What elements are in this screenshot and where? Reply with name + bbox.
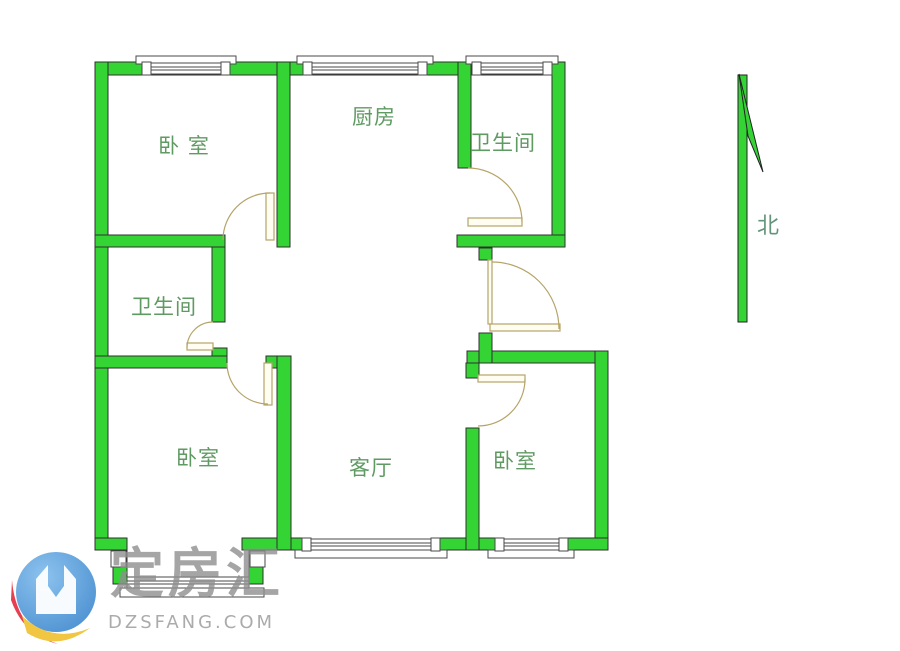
wall-bathroom1-bottom <box>457 235 565 247</box>
wall-bottom-seg4 <box>568 538 608 550</box>
room-label-living-room: 客厅 <box>349 456 393 480</box>
wall-living-bed3-divider-bottom <box>466 428 479 550</box>
wall-right-top <box>552 62 565 247</box>
wall-living-bed3-divider-top <box>466 363 479 378</box>
wall-entry-lower <box>479 333 492 363</box>
door-bathroom-mid-left <box>187 322 213 350</box>
window-bedroom-bottom-right <box>488 538 574 558</box>
door-entrance <box>488 260 560 331</box>
room-labels: 卧 室 厨房 卫生间 卫生间 卧室 客厅 卧室 <box>131 105 537 480</box>
north-arrow: 北 <box>738 74 779 322</box>
window-kitchen <box>297 56 433 75</box>
room-label-kitchen: 厨房 <box>352 105 396 129</box>
window-bathroom-top-right <box>466 56 558 75</box>
logo-mark <box>11 552 96 644</box>
wall-entry-stub <box>479 248 492 260</box>
watermark-brand: 定房汇 <box>110 546 284 603</box>
door-bathroom-top-right <box>468 168 522 226</box>
logo-circle <box>16 552 96 632</box>
wall-bedroom1-bottom <box>95 235 225 247</box>
wall-bedroom2-right <box>277 356 291 550</box>
room-label-bathroom-top-right: 卫生间 <box>470 131 536 155</box>
floor-plan-page: 卧 室 厨房 卫生间 卫生间 卧室 客厅 卧室 北 <box>0 0 900 651</box>
room-label-bedroom-bottom-right: 卧室 <box>493 449 537 473</box>
door-bedroom-bottom-left <box>227 363 272 405</box>
door-bedroom-top-left <box>223 193 274 240</box>
wall-bedroom1-right <box>277 62 290 247</box>
room-label-bedroom-top-left: 卧 室 <box>158 134 210 158</box>
door-bedroom-bottom-right <box>478 375 525 426</box>
north-label: 北 <box>757 214 779 239</box>
room-label-bedroom-bottom-left: 卧室 <box>176 446 220 470</box>
wall-bathroom2-bottom <box>95 356 227 368</box>
watermark-domain: DZSFANG.COM <box>108 612 275 633</box>
room-label-bathroom-mid-left: 卫生间 <box>131 295 197 319</box>
wall-left <box>95 62 108 550</box>
wall-right-bottom <box>595 351 608 550</box>
doors <box>187 168 560 426</box>
window-bedroom-top-left <box>136 56 236 75</box>
wall-bathroom2-right-upper <box>212 247 225 322</box>
window-living-room <box>295 538 447 558</box>
